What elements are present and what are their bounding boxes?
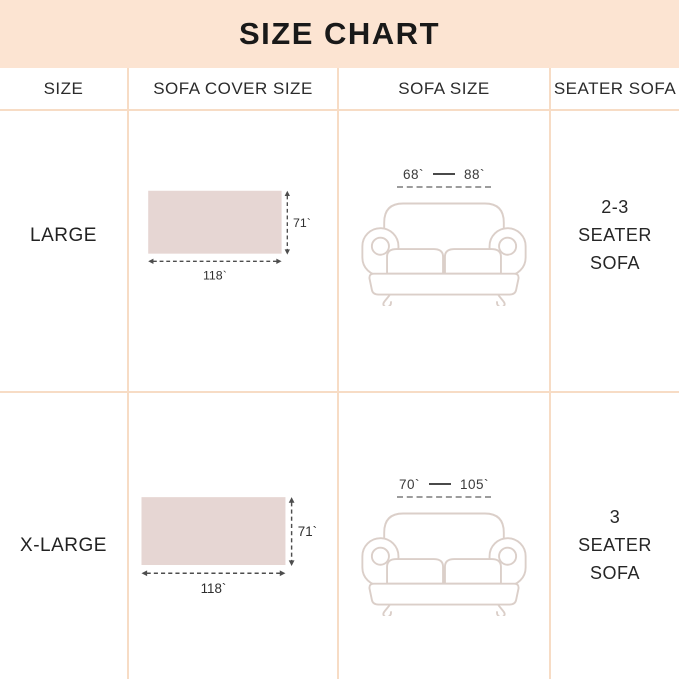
header-seater-sofa: SEATER SOFA (551, 68, 679, 111)
table-row-xlarge-seater-cell: 3 SEATER SOFA (551, 393, 679, 679)
height-dimension-label: 71` (293, 215, 311, 229)
header-sofa-size: SOFA SIZE (339, 68, 551, 111)
table-row-large-seater-cell: 2-3 SEATER SOFA (551, 111, 679, 393)
title-band: SIZE CHART (0, 0, 679, 68)
sofa-figure: 68` 88` (358, 167, 530, 306)
size-chart-infographic: SIZE CHART SIZE SOFA COVER SIZE SOFA SIZ… (0, 0, 679, 679)
table-row-large-cover-cell: 71` 118` (129, 111, 339, 393)
size-label: X-LARGE (20, 535, 107, 557)
sofa-min-label: 70` (399, 477, 420, 492)
page-title: SIZE CHART (239, 16, 440, 52)
seater-label: 3 SEATER SOFA (551, 504, 679, 588)
seater-label: 2-3 SEATER SOFA (551, 194, 679, 278)
width-dimension-label: 118` (201, 580, 227, 595)
size-label: LARGE (30, 225, 97, 247)
width-dimension-label: 118` (203, 268, 227, 282)
height-dimension-label: 71` (298, 524, 317, 539)
table-row-large-size-cell: LARGE (0, 111, 129, 393)
seater-text: SEATER SOFA (551, 222, 679, 278)
range-dash (429, 483, 451, 485)
size-chart-table: SIZE SOFA COVER SIZE SOFA SIZE SEATER SO… (0, 68, 679, 679)
sofa-min-label: 68` (403, 167, 424, 182)
header-size: SIZE (0, 68, 129, 111)
seater-count: 2-3 (551, 194, 679, 222)
seater-count: 3 (551, 504, 679, 532)
table-row-xlarge-size-cell: X-LARGE (0, 393, 129, 679)
table-row-large-sofa-cell: 68` 88` (339, 111, 551, 393)
sofa-figure: 70` 105` (358, 477, 530, 616)
sofa-width-range: 68` 88` (403, 167, 485, 182)
cover-size-figure: 71` 118` (135, 492, 331, 601)
seater-text: SEATER SOFA (551, 532, 679, 588)
cover-size-figure: 71` 118` (142, 186, 324, 287)
range-dash (433, 173, 455, 175)
sofa-dimension-rule (397, 496, 491, 498)
sofa-max-label: 105` (460, 477, 489, 492)
sofa-width-range: 70` 105` (399, 477, 489, 492)
sofa-max-label: 88` (464, 167, 485, 182)
sofa-dimension-rule (397, 186, 491, 188)
table-row-xlarge-cover-cell: 71` 118` (129, 393, 339, 679)
cover-swatch (141, 497, 285, 565)
cover-swatch (148, 190, 281, 253)
header-sofa-cover-size: SOFA COVER SIZE (129, 68, 339, 111)
table-row-xlarge-sofa-cell: 70` 105` (339, 393, 551, 679)
sofa-icon (358, 194, 530, 306)
sofa-icon (358, 504, 530, 616)
